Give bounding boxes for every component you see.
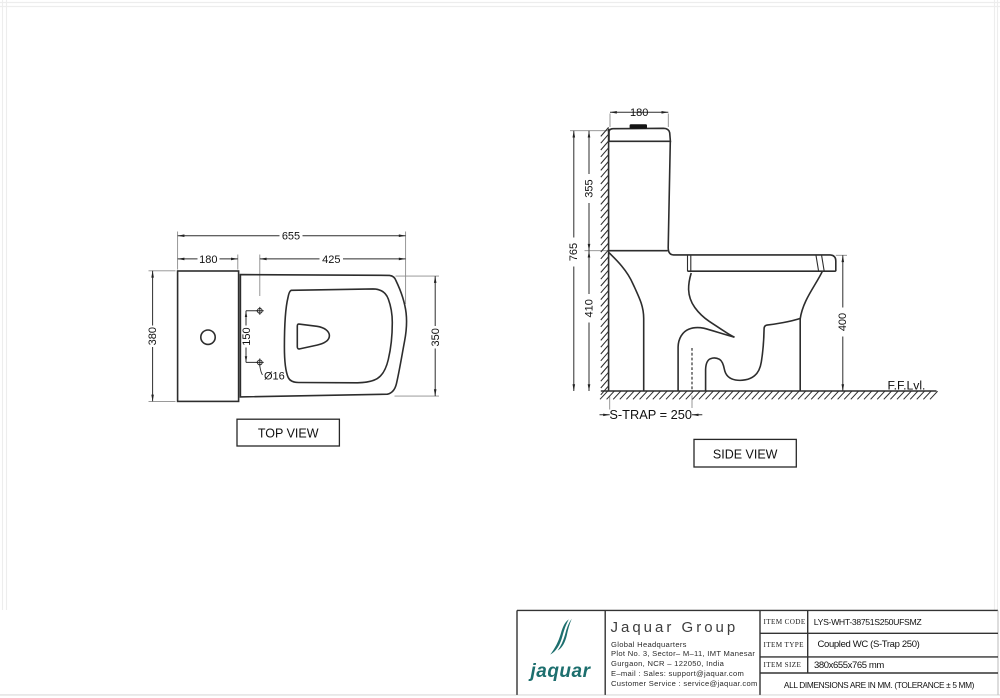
svg-text:TOP VIEW: TOP VIEW (258, 427, 319, 441)
svg-text:400: 400 (837, 313, 849, 331)
svg-text:S-TRAP = 250: S-TRAP = 250 (609, 407, 692, 422)
svg-text:jaquar: jaquar (527, 661, 591, 682)
svg-text:380: 380 (147, 327, 159, 345)
svg-text:F.F.Lvl.: F.F.Lvl. (888, 378, 926, 392)
svg-text:410: 410 (583, 299, 595, 317)
svg-text:SIDE VIEW: SIDE VIEW (713, 447, 778, 461)
svg-text:655: 655 (282, 231, 300, 243)
svg-text:765: 765 (568, 243, 580, 261)
svg-text:150: 150 (241, 327, 253, 345)
svg-text:350: 350 (430, 328, 442, 346)
svg-text:355: 355 (583, 179, 595, 197)
svg-text:Ø16: Ø16 (264, 371, 285, 383)
svg-text:425: 425 (322, 254, 340, 266)
svg-text:180: 180 (630, 107, 648, 119)
svg-text:180: 180 (199, 254, 217, 266)
